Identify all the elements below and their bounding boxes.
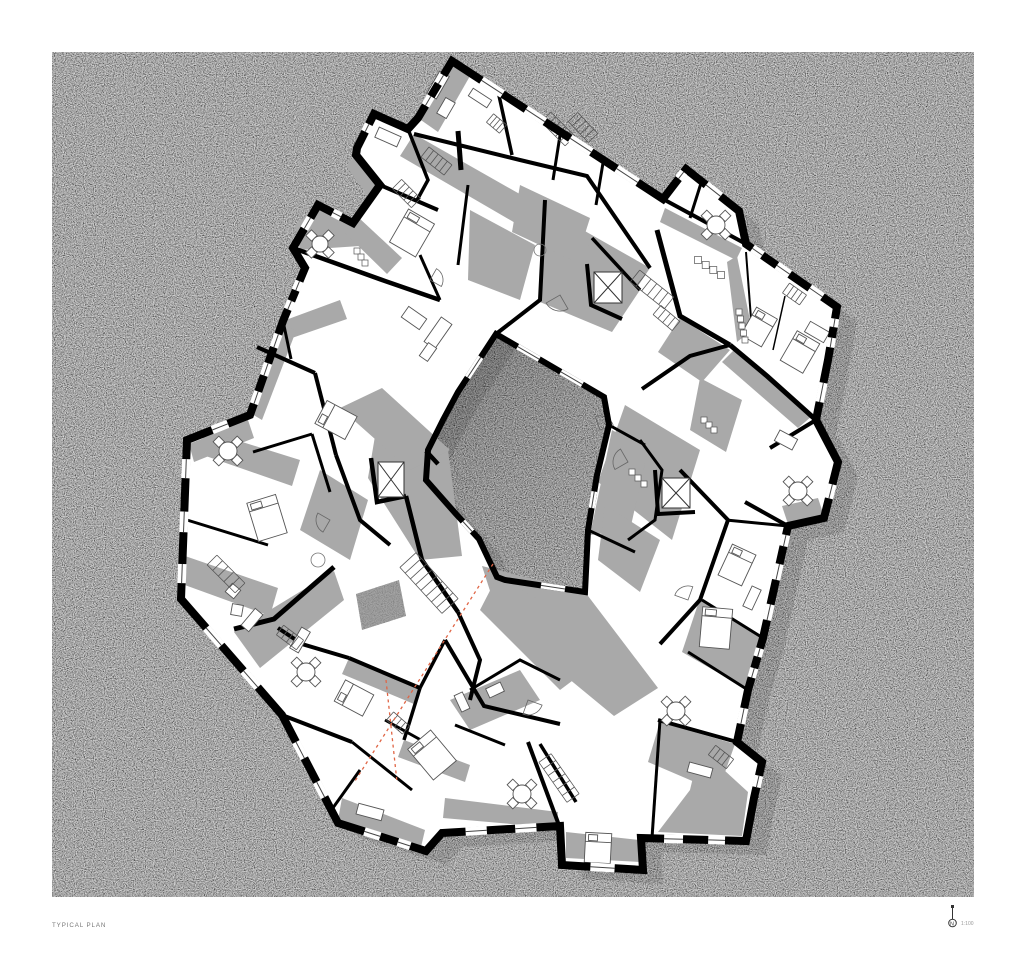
- svg-text:TYPICAL PLAN: TYPICAL PLAN: [52, 922, 106, 929]
- svg-text:1:100: 1:100: [961, 921, 974, 927]
- svg-text:N: N: [950, 922, 954, 928]
